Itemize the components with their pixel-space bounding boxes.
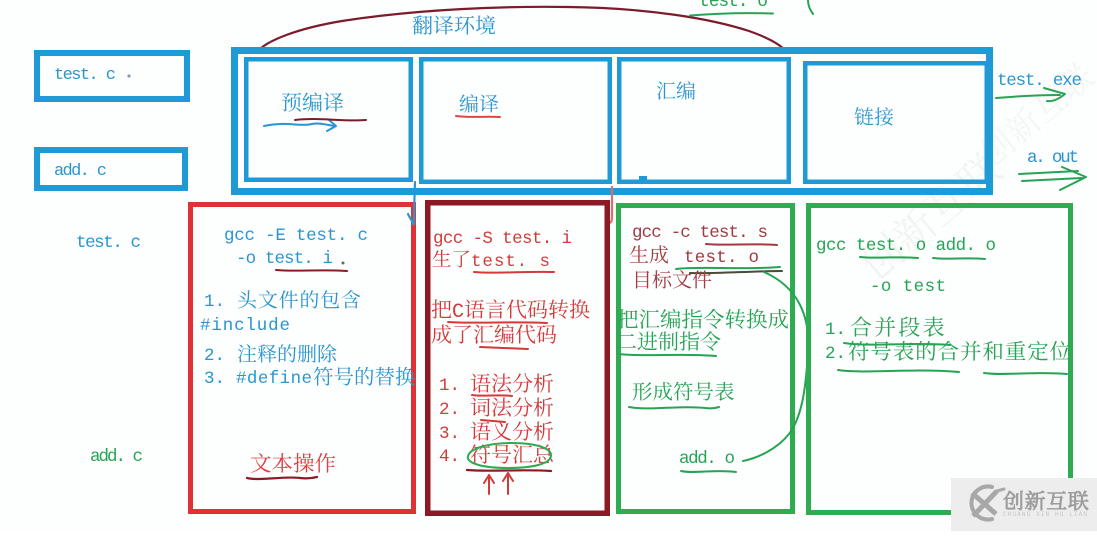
svg-text:2.: 2.: [204, 346, 225, 366]
svg-text:C: C: [452, 301, 464, 324]
svg-text:gcc -E test. c: gcc -E test. c: [224, 226, 368, 246]
svg-text:-o test. i: -o test. i: [236, 249, 333, 269]
svg-text:3.: 3.: [204, 369, 225, 389]
svg-text:test. o: test. o: [699, 0, 768, 12]
svg-text:4.: 4.: [439, 447, 460, 467]
svg-text:gcc -c test. s: gcc -c test. s: [632, 223, 768, 243]
svg-text:test. o: test. o: [684, 248, 759, 268]
svg-text:#define: #define: [236, 369, 312, 389]
svg-text:gcc test. o add. o: gcc test. o add. o: [816, 236, 996, 256]
svg-text:test. exe: test. exe: [997, 71, 1082, 91]
svg-text:CHUANG XIN HU LIAN: CHUANG XIN HU LIAN: [1003, 511, 1087, 518]
svg-text:test. c: test. c: [76, 233, 141, 253]
svg-text:-o test: -o test: [870, 277, 946, 297]
svg-text:#include: #include: [200, 316, 290, 336]
svg-text:add. o: add. o: [679, 449, 735, 469]
svg-text:1.: 1.: [439, 376, 460, 396]
svg-text:add. c: add. c: [90, 447, 143, 467]
svg-text:test. c: test. c: [54, 66, 116, 85]
svg-text:test. s: test. s: [471, 252, 550, 272]
svg-text:2.: 2.: [439, 400, 460, 420]
svg-text:add. c: add. c: [54, 162, 107, 181]
svg-text:gcc -S test. i: gcc -S test. i: [433, 229, 572, 249]
svg-text:1.: 1.: [204, 292, 225, 312]
svg-text:2.: 2.: [825, 344, 846, 364]
svg-text:a. out: a. out: [1027, 148, 1079, 168]
svg-text:1.: 1.: [825, 320, 846, 340]
svg-text:3.: 3.: [439, 424, 460, 444]
